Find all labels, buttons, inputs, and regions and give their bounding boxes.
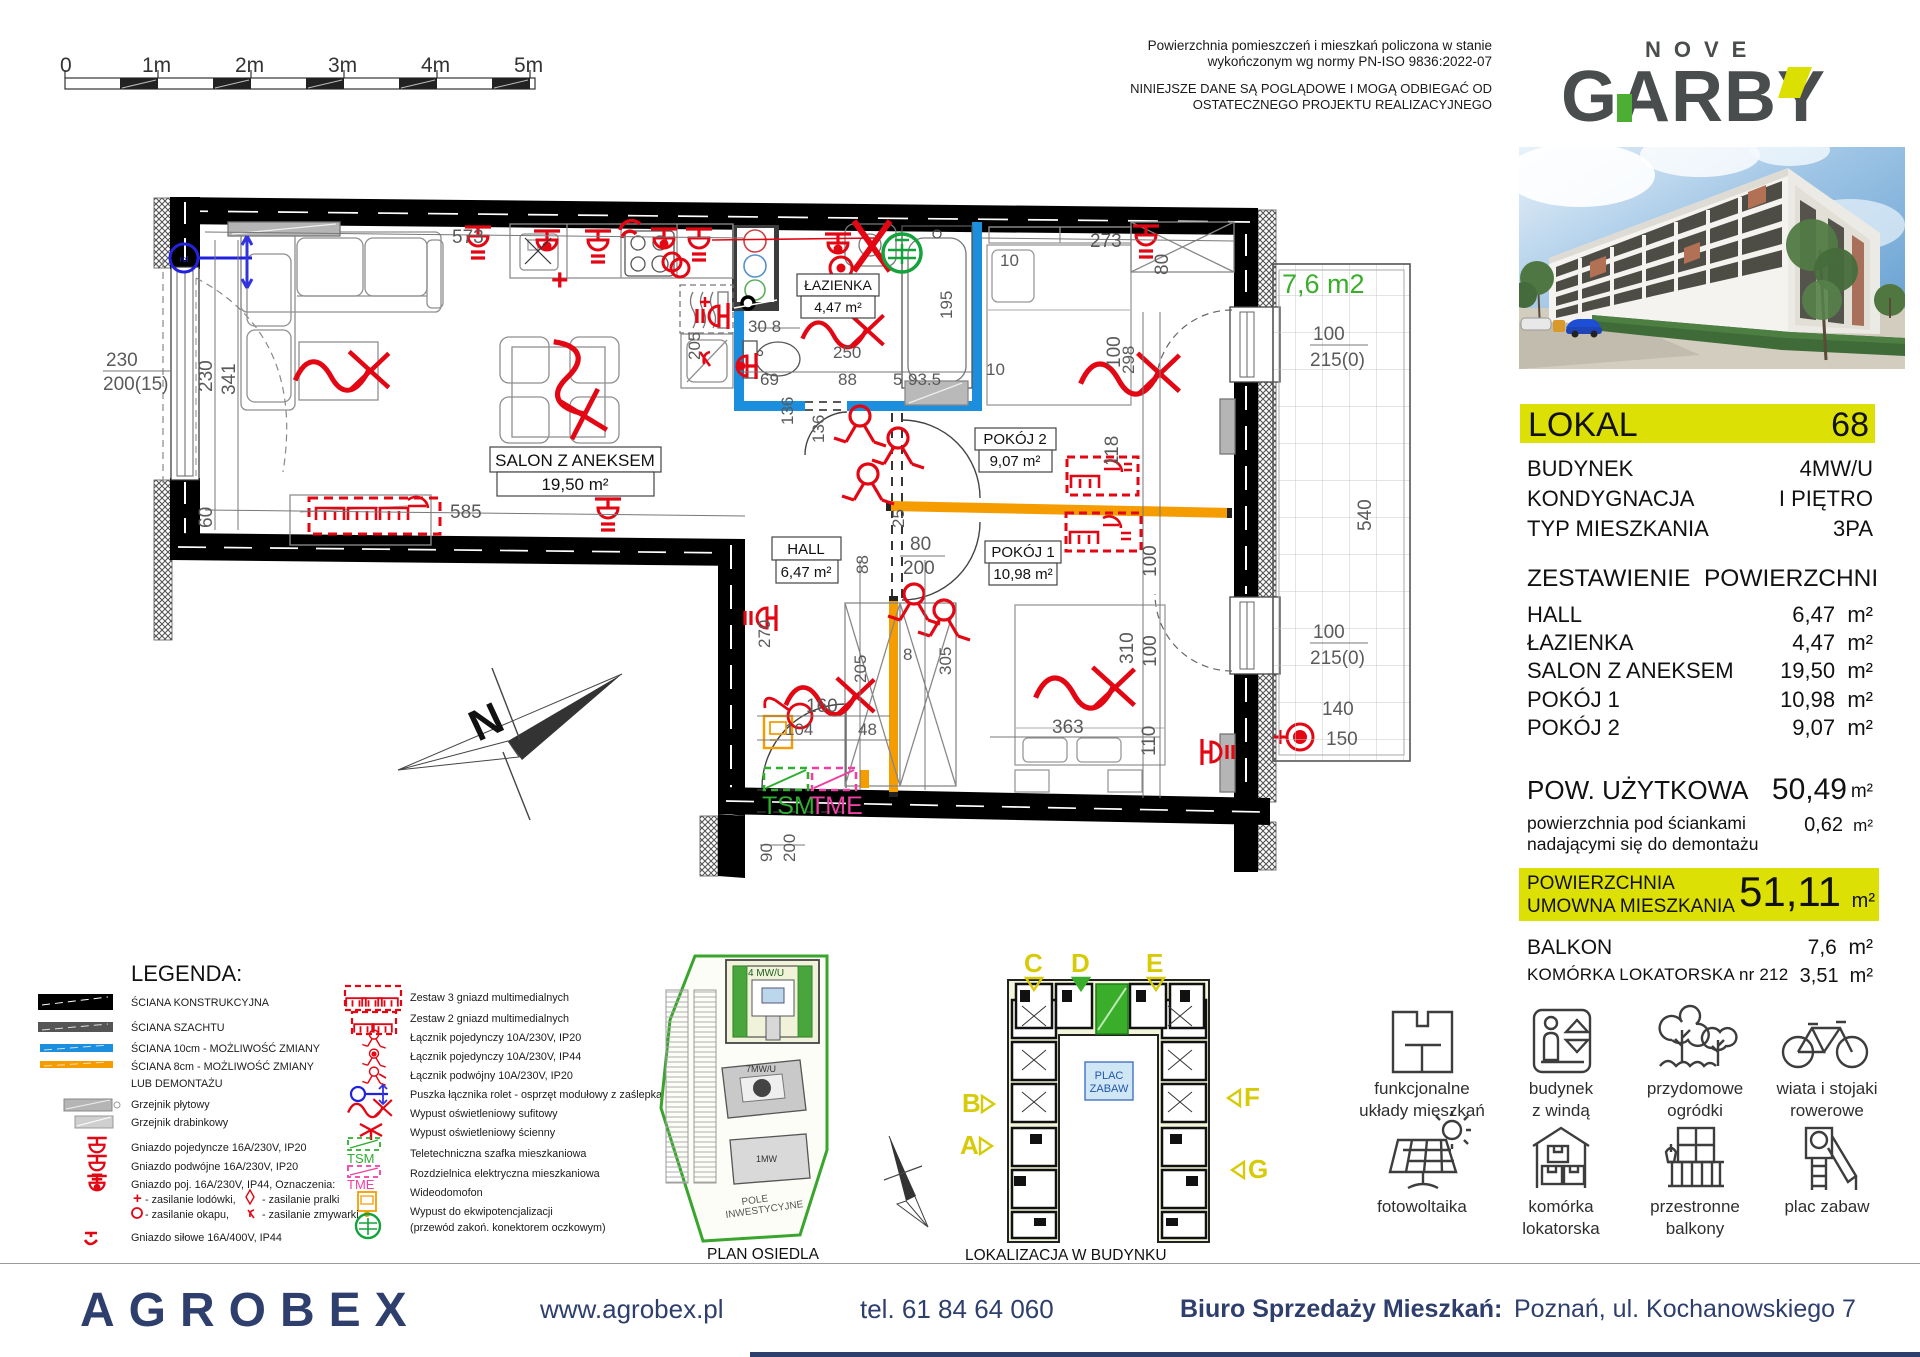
svg-text:LEGENDA:: LEGENDA: — [131, 961, 242, 986]
svg-text:Puszka łącznika rolet - osprzę: Puszka łącznika rolet - osprzęt modułowy… — [410, 1089, 662, 1101]
svg-text:215(0): 215(0) — [1310, 350, 1365, 371]
svg-text:LOKALIZACJA W BUDYNKU: LOKALIZACJA W BUDYNKU — [965, 1247, 1167, 1264]
svg-text:Łącznik pojedynczy 10A/230V, I: Łącznik pojedynczy 10A/230V, IP44 — [410, 1051, 581, 1063]
svg-text:4 MW/U: 4 MW/U — [748, 968, 784, 979]
svg-text:wiata i stojaki: wiata i stojaki — [1775, 1079, 1877, 1098]
svg-text:9,07 m²: 9,07 m² — [990, 453, 1041, 470]
svg-text:19,50 m²: 19,50 m² — [541, 475, 608, 494]
svg-text:Rozdzielnica elektryczna miesz: Rozdzielnica elektryczna mieszkaniowa — [410, 1168, 600, 1180]
svg-text:TME: TME — [347, 1177, 375, 1192]
svg-text:Zestaw 3 gniazd multimedialnyc: Zestaw 3 gniazd multimedialnych — [410, 992, 569, 1004]
svg-text:5m: 5m — [514, 54, 543, 77]
svg-text:SALON Z ANEKSEM: SALON Z ANEKSEM — [495, 451, 655, 470]
svg-text:10,98 m²: 10,98 m² — [993, 566, 1052, 583]
svg-text:rowerowe: rowerowe — [1790, 1101, 1864, 1120]
svg-text:ŚCIANA SZACHTU: ŚCIANA SZACHTU — [131, 1021, 225, 1034]
svg-text:25: 25 — [889, 509, 908, 528]
svg-text:150: 150 — [1326, 729, 1358, 750]
svg-text:balkony: balkony — [1666, 1219, 1725, 1238]
svg-text:Grzejnik drabinkowy: Grzejnik drabinkowy — [131, 1117, 229, 1129]
svg-text:3m: 3m — [328, 54, 357, 77]
svg-text:7,6 m2: 7,6 m2 — [1282, 269, 1365, 299]
svg-text:136: 136 — [809, 415, 828, 443]
svg-text:ŁAZIENKA: ŁAZIENKA — [804, 277, 872, 293]
svg-text:573: 573 — [452, 227, 484, 248]
svg-text:540: 540 — [1355, 499, 1376, 531]
svg-text:1m: 1m — [142, 54, 171, 77]
svg-text:60: 60 — [196, 507, 217, 528]
svg-text:341: 341 — [219, 363, 240, 395]
svg-text:lokatorska: lokatorska — [1522, 1219, 1600, 1238]
svg-text:ŚCIANA KONSTRUKCYJNA: ŚCIANA KONSTRUKCYJNA — [131, 996, 270, 1009]
svg-text:fotowoltaika: fotowoltaika — [1377, 1197, 1467, 1216]
svg-text:6,47 m²: 6,47 m² — [781, 564, 832, 581]
svg-text:POKÓJ 2: POKÓJ 2 — [983, 431, 1046, 448]
svg-text:- zasilanie zmywarki: - zasilanie zmywarki — [262, 1209, 359, 1221]
svg-text:8: 8 — [903, 645, 912, 664]
svg-text:200: 200 — [780, 834, 799, 862]
svg-text:F: F — [1244, 1082, 1260, 1112]
svg-text:230: 230 — [106, 350, 138, 371]
svg-text:funkcjonalne: funkcjonalne — [1374, 1079, 1469, 1098]
svg-text:układy mieszkań: układy mieszkań — [1359, 1101, 1485, 1120]
svg-text:0: 0 — [60, 54, 72, 77]
svg-text:D: D — [1071, 948, 1090, 978]
svg-text:Teletechniczna szafka mieszkan: Teletechniczna szafka mieszkaniowa — [410, 1148, 586, 1160]
svg-text:4m: 4m — [421, 54, 450, 77]
svg-text:215(0): 215(0) — [1310, 648, 1365, 669]
svg-text:budynek: budynek — [1529, 1079, 1594, 1098]
svg-text:2m: 2m — [235, 54, 264, 77]
svg-text:104: 104 — [785, 720, 813, 739]
svg-text:90: 90 — [757, 843, 776, 862]
svg-text:136: 136 — [778, 397, 797, 425]
svg-text:200: 200 — [903, 558, 935, 579]
svg-text:- zasilanie okapu,: - zasilanie okapu, — [145, 1209, 229, 1221]
svg-text:Gniazdo poj. 16A/230V, IP44, O: Gniazdo poj. 16A/230V, IP44, Oznaczenia: — [131, 1179, 335, 1191]
svg-text:C: C — [1024, 948, 1043, 978]
svg-text:Zestaw 2 gniazd multimedialnyc: Zestaw 2 gniazd multimedialnych — [410, 1013, 569, 1025]
svg-text:118: 118 — [1102, 436, 1123, 466]
svg-text:88: 88 — [853, 555, 872, 574]
svg-text:(przewód zakoń. konektorem ocz: (przewód zakoń. konektorem oczkowym) — [410, 1222, 606, 1234]
svg-text:195: 195 — [937, 291, 956, 319]
svg-text:30 8: 30 8 — [748, 317, 781, 336]
svg-text:100: 100 — [1140, 545, 1161, 577]
svg-text:10: 10 — [986, 360, 1005, 379]
svg-text:ŚCIANA 10cm - MOŻLIWOŚĆ ZMIANY: ŚCIANA 10cm - MOŻLIWOŚĆ ZMIANY — [131, 1042, 320, 1055]
svg-text:z windą: z windą — [1532, 1101, 1590, 1120]
svg-text:363: 363 — [1052, 717, 1084, 738]
svg-text:Łącznik pojedynczy 10A/230V, I: Łącznik pojedynczy 10A/230V, IP20 — [410, 1032, 581, 1044]
svg-text:B: B — [962, 1088, 981, 1118]
svg-text:93.5: 93.5 — [908, 370, 941, 389]
svg-text:310: 310 — [1117, 632, 1138, 664]
svg-text:- zasilanie lodówki,: - zasilanie lodówki, — [145, 1194, 236, 1206]
svg-text:100: 100 — [1104, 336, 1125, 368]
svg-text:HALL: HALL — [787, 541, 825, 558]
svg-text:250: 250 — [833, 343, 861, 362]
svg-text:plac zabaw: plac zabaw — [1784, 1197, 1870, 1216]
svg-text:ŚCIANA 8cm - MOŻLIWOŚĆ ZMIANY: ŚCIANA 8cm - MOŻLIWOŚĆ ZMIANY — [131, 1060, 314, 1073]
svg-text:230: 230 — [196, 360, 217, 392]
svg-text:E: E — [1146, 948, 1163, 978]
svg-text:100: 100 — [1140, 635, 1161, 667]
svg-text:PLAN OSIEDLA: PLAN OSIEDLA — [707, 1246, 820, 1263]
svg-text:przestronne: przestronne — [1650, 1197, 1740, 1216]
svg-text:5: 5 — [893, 370, 902, 389]
svg-text:4,47 m²: 4,47 m² — [814, 299, 862, 315]
svg-text:140: 140 — [1322, 699, 1354, 720]
svg-text:100: 100 — [1313, 324, 1345, 345]
svg-text:Gniazdo pojedyncze 16A/230V, I: Gniazdo pojedyncze 16A/230V, IP20 — [131, 1142, 306, 1154]
svg-text:88: 88 — [838, 370, 857, 389]
svg-text:POKÓJ 1: POKÓJ 1 — [991, 544, 1054, 561]
svg-text:LUB DEMONTAŻU: LUB DEMONTAŻU — [131, 1077, 223, 1090]
svg-text:585: 585 — [450, 502, 482, 523]
svg-text:Wypust oświetleniowy sufitowy: Wypust oświetleniowy sufitowy — [410, 1108, 558, 1120]
svg-text:G: G — [1248, 1154, 1268, 1184]
svg-text:TSM: TSM — [347, 1151, 374, 1166]
svg-text:TSM: TSM — [762, 792, 815, 820]
svg-text:Grzejnik płytowy: Grzejnik płytowy — [131, 1099, 210, 1111]
svg-text:Wideodomofon: Wideodomofon — [410, 1187, 483, 1199]
svg-text:200(15): 200(15) — [103, 374, 169, 395]
svg-text:100: 100 — [1313, 622, 1345, 643]
svg-text:przydomowe: przydomowe — [1647, 1079, 1743, 1098]
svg-text:205: 205 — [685, 332, 704, 360]
svg-text:80: 80 — [910, 534, 931, 555]
svg-text:69: 69 — [760, 370, 779, 389]
svg-text:110: 110 — [1139, 726, 1160, 756]
svg-text:+: + — [133, 1190, 142, 1207]
svg-text:10: 10 — [1000, 251, 1019, 270]
svg-text:273: 273 — [1090, 231, 1122, 252]
svg-text:1MW: 1MW — [756, 1154, 778, 1164]
svg-text:205: 205 — [851, 655, 870, 683]
svg-text:Gniazdo podwójne 16A/230V, IP2: Gniazdo podwójne 16A/230V, IP20 — [131, 1161, 298, 1173]
svg-text:270: 270 — [755, 620, 774, 648]
svg-text:PLAC: PLAC — [1095, 1070, 1124, 1082]
svg-text:komórka: komórka — [1528, 1197, 1594, 1216]
svg-text:7MW/U: 7MW/U — [746, 1064, 776, 1074]
svg-text:+: + — [551, 264, 569, 297]
svg-text:TME: TME — [810, 792, 863, 820]
svg-text:160: 160 — [806, 696, 838, 717]
svg-text:- zasilanie pralki: - zasilanie pralki — [262, 1194, 339, 1206]
svg-text:Wypust oświetleniowy ścienny: Wypust oświetleniowy ścienny — [410, 1127, 556, 1139]
svg-text:305: 305 — [936, 647, 955, 675]
svg-text:Gniazdo siłowe 16A/400V, IP44: Gniazdo siłowe 16A/400V, IP44 — [131, 1232, 282, 1244]
svg-text:A: A — [960, 1130, 979, 1160]
svg-text:Łącznik podwójny 10A/230V, IP2: Łącznik podwójny 10A/230V, IP20 — [410, 1070, 573, 1082]
svg-text:rol: rol — [180, 255, 189, 264]
svg-text:Wypust do ekwipotencjalizacji: Wypust do ekwipotencjalizacji — [410, 1206, 553, 1218]
svg-text:ZABAW: ZABAW — [1090, 1083, 1129, 1095]
svg-text:80: 80 — [1152, 254, 1173, 275]
svg-text:ogródki: ogródki — [1667, 1101, 1723, 1120]
svg-text:48: 48 — [858, 720, 877, 739]
